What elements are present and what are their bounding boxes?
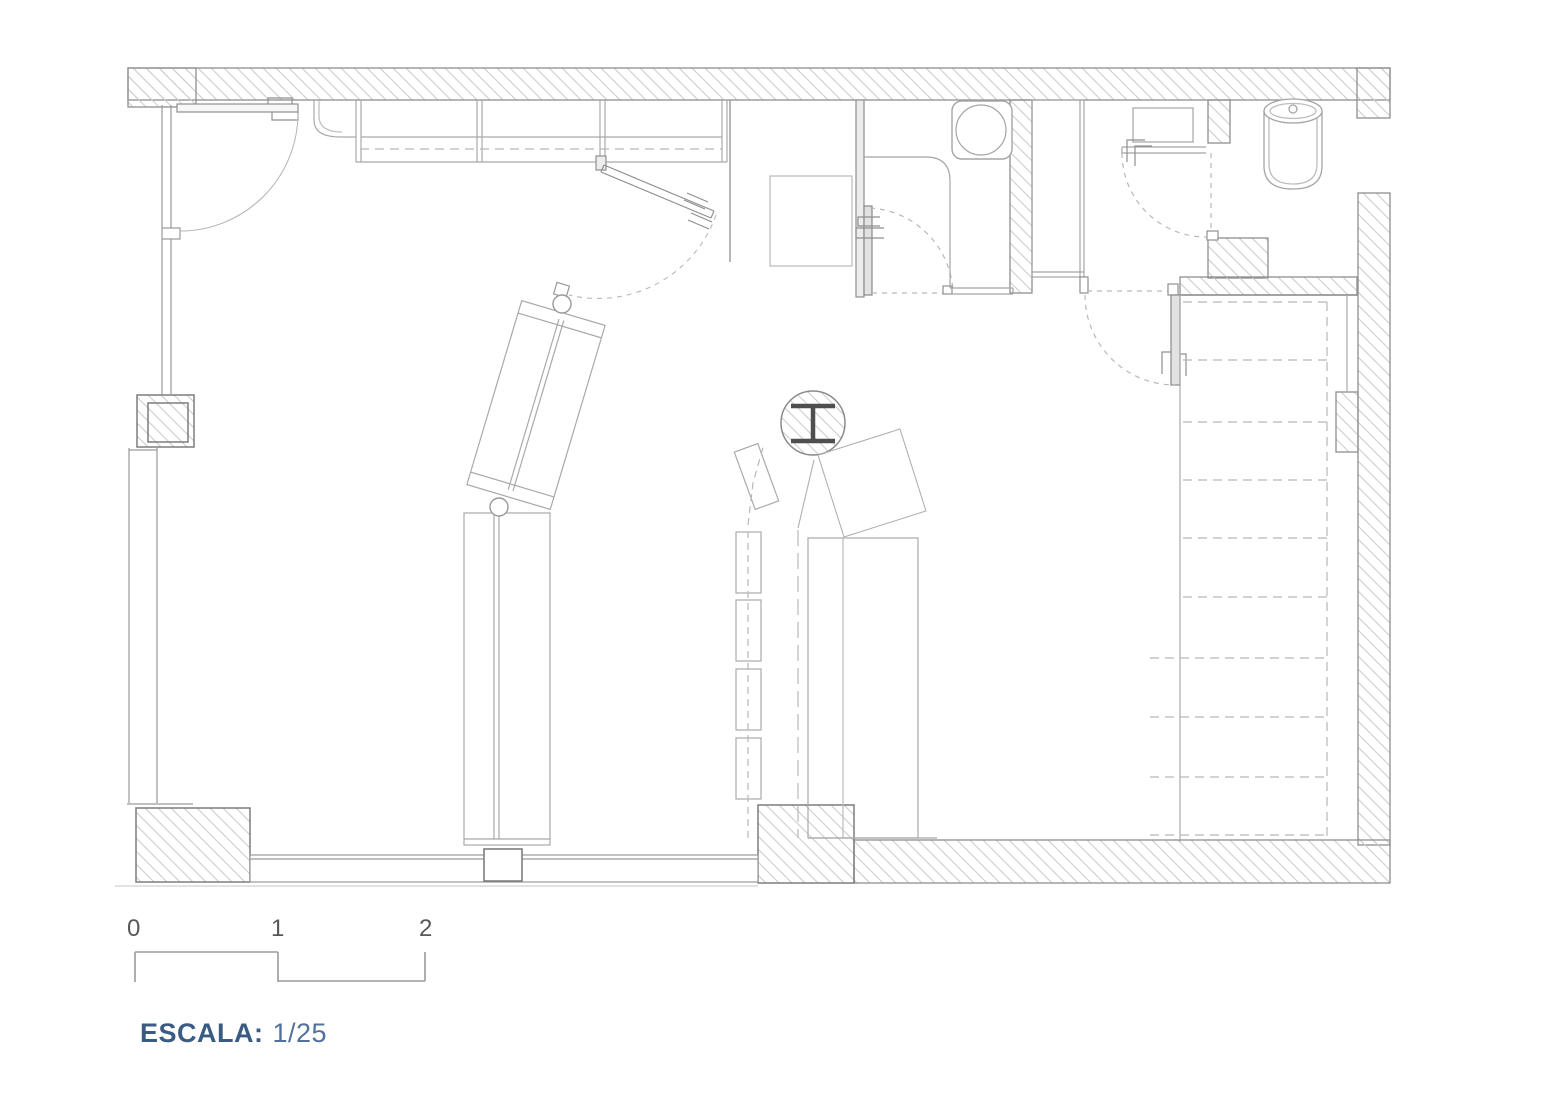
dining-table-square [770, 176, 852, 266]
water-heater-top [1264, 99, 1322, 123]
scale-tick-0: 0 [127, 915, 140, 942]
entry-door-leaf [177, 104, 298, 112]
window-mullion [484, 849, 522, 881]
pivot-bottom-ball [490, 498, 508, 516]
kitchen-door-swing-arc [870, 208, 953, 292]
wall-bottom-right-band [854, 840, 1390, 883]
bath-door-stop [1207, 231, 1218, 240]
interior-door-open [569, 156, 716, 298]
kitchen-partition-wall [856, 100, 864, 297]
shower-unit [1032, 100, 1084, 277]
scale-tick-2: 2 [419, 915, 432, 942]
bathroom [1032, 100, 1218, 385]
pivoting-panel [467, 282, 605, 516]
pier-bottom-center [758, 805, 854, 883]
interior-door-latch [684, 193, 712, 229]
wall-right [1358, 193, 1390, 845]
scale-tick-1: 1 [271, 915, 284, 942]
wall-kitchen-bath-divider [1010, 100, 1032, 293]
scale-caption-label: ESCALA: [140, 1018, 264, 1048]
kitchen [856, 100, 1013, 297]
hall-door-leaf [1171, 295, 1180, 385]
interior-door-hinge [596, 156, 606, 170]
scale-caption: ESCALA:1/25 [140, 1018, 327, 1049]
stairs [1150, 295, 1357, 842]
pivot-top-ball [553, 295, 571, 313]
kitchen-counter-edge [864, 157, 950, 288]
bench-cabinet [464, 513, 550, 845]
scale-bar: 0 1 2 [127, 915, 432, 982]
wall-hall-band [1180, 277, 1357, 295]
left-wall-and-window [127, 105, 193, 804]
hall-door-jamb [1168, 284, 1178, 295]
wall-hall-step [1208, 238, 1268, 278]
wall-right-pilaster [1336, 392, 1358, 452]
wall-bath-pier [1208, 100, 1230, 143]
bath-door-jamb [1080, 277, 1088, 293]
long-table [808, 538, 937, 838]
wall-top-left-block [128, 68, 196, 107]
wall-top-right-corner [1357, 68, 1390, 118]
water-heater [1264, 99, 1322, 189]
scale-caption-value: 1/25 [273, 1018, 328, 1048]
bathroom-sink [1133, 108, 1193, 142]
kitchen-door-stop [943, 286, 952, 294]
kitchen-door-leaf [864, 206, 872, 295]
wall-top-band [128, 68, 1390, 100]
entry-door [177, 98, 298, 231]
interior-door-swing-arc [569, 215, 716, 298]
seat-row [734, 444, 778, 838]
entry-door-swing-arc [180, 113, 298, 231]
floor-plan-page: { "title": { "scale_label": "ESCALA:", "… [0, 0, 1556, 1100]
floor-plan-drawing: 0 1 2 [0, 0, 1556, 1100]
seat-tilted [734, 444, 778, 510]
door-hinge-block [162, 228, 180, 239]
pier-bottom-left [136, 808, 250, 882]
top-counter [314, 100, 727, 163]
steel-column-symbol [781, 391, 845, 455]
kitchen-sink [952, 101, 1012, 159]
column-leader-lines [798, 460, 814, 838]
